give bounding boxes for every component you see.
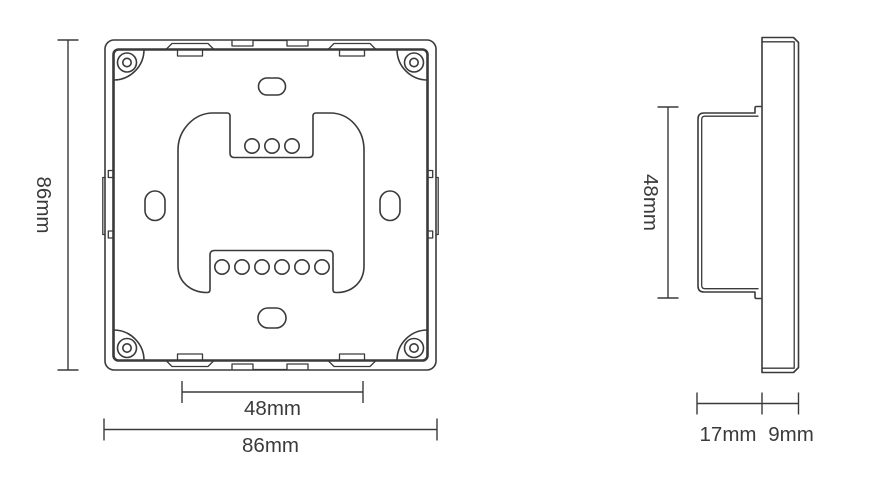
pin-hole (285, 139, 299, 153)
side-rear-box (698, 107, 762, 299)
pin-hole (245, 139, 259, 153)
dimension-line (58, 40, 79, 370)
bottom-terminal-pins (215, 260, 329, 274)
side-panel-plate (762, 38, 799, 373)
front-width-dimension-label: 86mm (242, 434, 299, 457)
screw-hole (118, 53, 137, 72)
top-oval-opening (259, 78, 286, 95)
dimension-line (697, 393, 799, 415)
side-panel-depth-label: 9mm (768, 423, 814, 446)
pin-hole (265, 139, 279, 153)
front-outer-outline (105, 40, 436, 370)
technical-drawing: 86mm 48mm 86mm 48mm (0, 0, 881, 481)
pin-hole (275, 260, 289, 274)
screw-hole-center (123, 344, 131, 352)
pin-hole (255, 260, 269, 274)
side-view: 48mm 17mm 9mm (639, 38, 814, 447)
right-oval-opening (380, 191, 400, 221)
front-width-dimension: 86mm (104, 419, 437, 458)
screw-hole (118, 339, 137, 358)
screw-hole (405, 339, 424, 358)
side-height-dimension: 48mm (639, 107, 679, 298)
drawing-svg: 86mm 48mm 86mm 48mm (0, 0, 881, 481)
side-depth-dimensions: 17mm 9mm (697, 393, 814, 447)
side-height-dimension-label: 48mm (639, 174, 662, 231)
pin-hole (295, 260, 309, 274)
screw-hole-center (410, 58, 418, 66)
bottom-oval-opening (258, 308, 286, 328)
side-panel-plate-bevel (762, 42, 794, 368)
screw-hole-center (410, 344, 418, 352)
pin-hole (235, 260, 249, 274)
front-height-dimension: 86mm (32, 40, 79, 370)
pin-hole (315, 260, 329, 274)
side-rear-box-bevel (702, 116, 758, 289)
front-view: 86mm 48mm 86mm (32, 40, 438, 457)
front-height-dimension-label: 86mm (32, 177, 55, 234)
top-center-tab (232, 41, 308, 47)
connector-body-outline (178, 113, 364, 293)
pin-hole (215, 260, 229, 274)
top-terminal-pins (245, 139, 299, 153)
left-oval-opening (145, 191, 165, 221)
screw-hole (405, 53, 424, 72)
bottom-center-tab (232, 364, 308, 370)
front-mount-spacing-dimension: 48mm (182, 381, 363, 420)
side-body-depth-label: 17mm (700, 423, 757, 446)
front-mount-spacing-label: 48mm (244, 397, 301, 420)
screw-hole-center (123, 58, 131, 66)
